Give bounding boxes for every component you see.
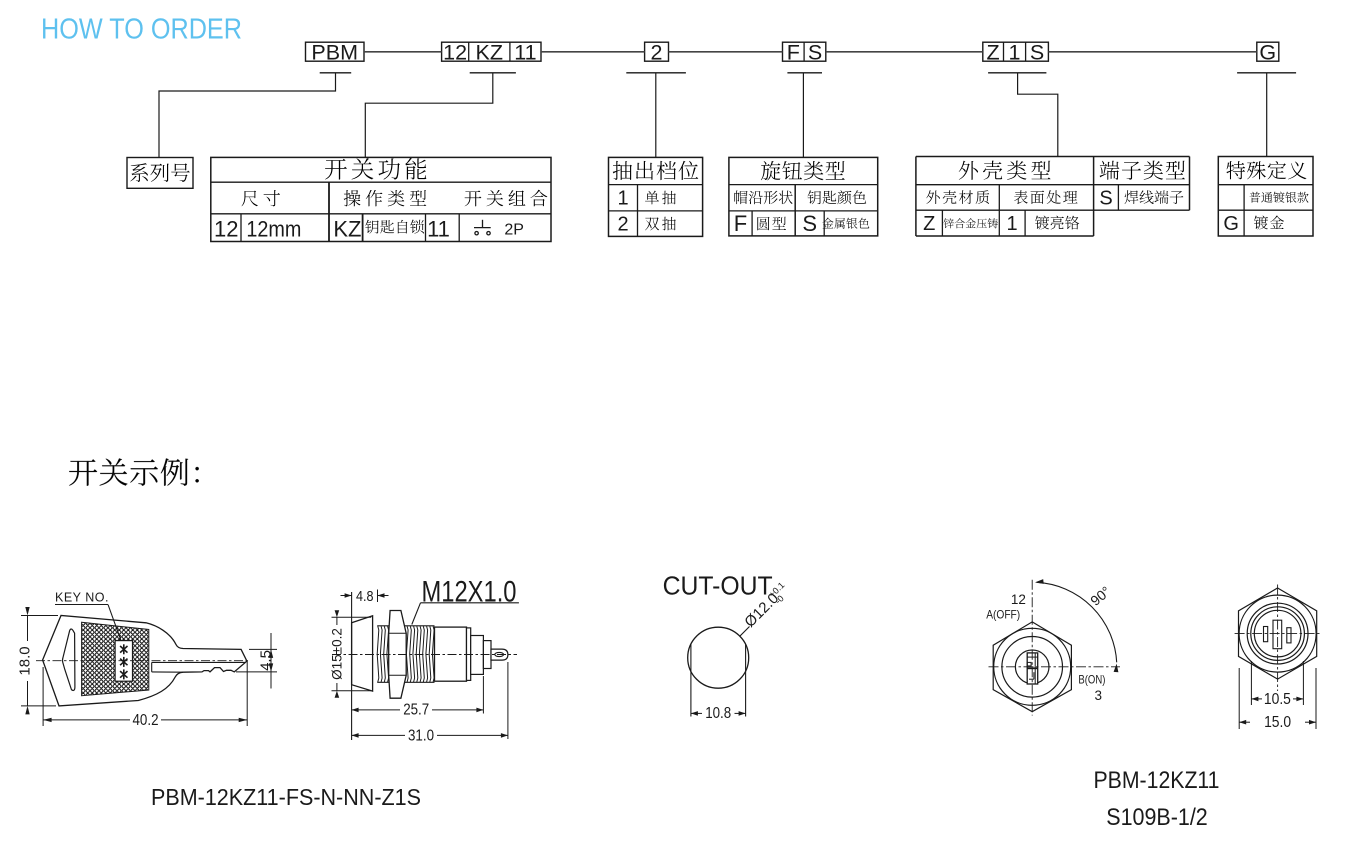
- svg-text:S: S: [808, 41, 822, 65]
- svg-text:G: G: [1223, 213, 1239, 235]
- svg-text:2: 2: [651, 41, 663, 65]
- svg-text:31.0: 31.0: [408, 727, 434, 744]
- svg-text:Z: Z: [987, 41, 1000, 65]
- svg-text:PBM-12KZ11-FS-N-NN-Z1S: PBM-12KZ11-FS-N-NN-Z1S: [151, 784, 421, 810]
- svg-text:CUT-OUT: CUT-OUT: [663, 571, 773, 601]
- svg-text:F: F: [734, 211, 747, 236]
- svg-text:25.7: 25.7: [403, 701, 429, 718]
- svg-text:15.0: 15.0: [1264, 714, 1291, 731]
- svg-text:PBM: PBM: [311, 41, 358, 65]
- svg-text:90°: 90°: [1087, 583, 1114, 609]
- svg-text:G: G: [1259, 41, 1276, 65]
- svg-text:Ø15±0.2: Ø15±0.2: [330, 628, 345, 680]
- svg-text:S: S: [802, 211, 817, 236]
- svg-text:11: 11: [514, 41, 536, 65]
- svg-text:12mm: 12mm: [246, 217, 301, 242]
- svg-text:11: 11: [427, 217, 450, 242]
- svg-text:B(ON): B(ON): [1078, 673, 1105, 687]
- svg-text:S109B-1/2: S109B-1/2: [1106, 804, 1208, 831]
- svg-text:12: 12: [214, 217, 238, 242]
- svg-text:10.5: 10.5: [1264, 691, 1291, 708]
- svg-text:2: 2: [617, 214, 628, 236]
- svg-text:2P: 2P: [504, 222, 524, 239]
- svg-text:1: 1: [617, 188, 628, 210]
- svg-text:4.5: 4.5: [257, 650, 274, 671]
- svg-text:PBM-12KZ11: PBM-12KZ11: [1094, 767, 1220, 794]
- svg-text:10.8: 10.8: [705, 705, 731, 722]
- svg-text:1: 1: [1009, 41, 1021, 65]
- svg-text:12: 12: [443, 41, 467, 65]
- svg-text:KZ: KZ: [476, 41, 503, 65]
- svg-text:18.0: 18.0: [17, 646, 34, 675]
- svg-text:S: S: [1030, 41, 1044, 65]
- svg-text:40.2: 40.2: [133, 712, 159, 729]
- svg-text:HOW TO ORDER: HOW TO ORDER: [41, 14, 242, 46]
- svg-text:Z: Z: [923, 213, 935, 235]
- svg-text:F: F: [787, 41, 800, 65]
- svg-text:A(OFF): A(OFF): [986, 607, 1020, 621]
- svg-text:3: 3: [1094, 688, 1102, 703]
- svg-text:1: 1: [1007, 213, 1018, 235]
- svg-text:M12X1.0: M12X1.0: [422, 576, 517, 609]
- svg-text:4.8: 4.8: [356, 588, 374, 605]
- svg-text:12: 12: [1011, 592, 1026, 607]
- svg-text:S: S: [1099, 188, 1112, 210]
- svg-text:KEY NO.: KEY NO.: [55, 590, 109, 605]
- svg-text:KZ: KZ: [333, 217, 361, 242]
